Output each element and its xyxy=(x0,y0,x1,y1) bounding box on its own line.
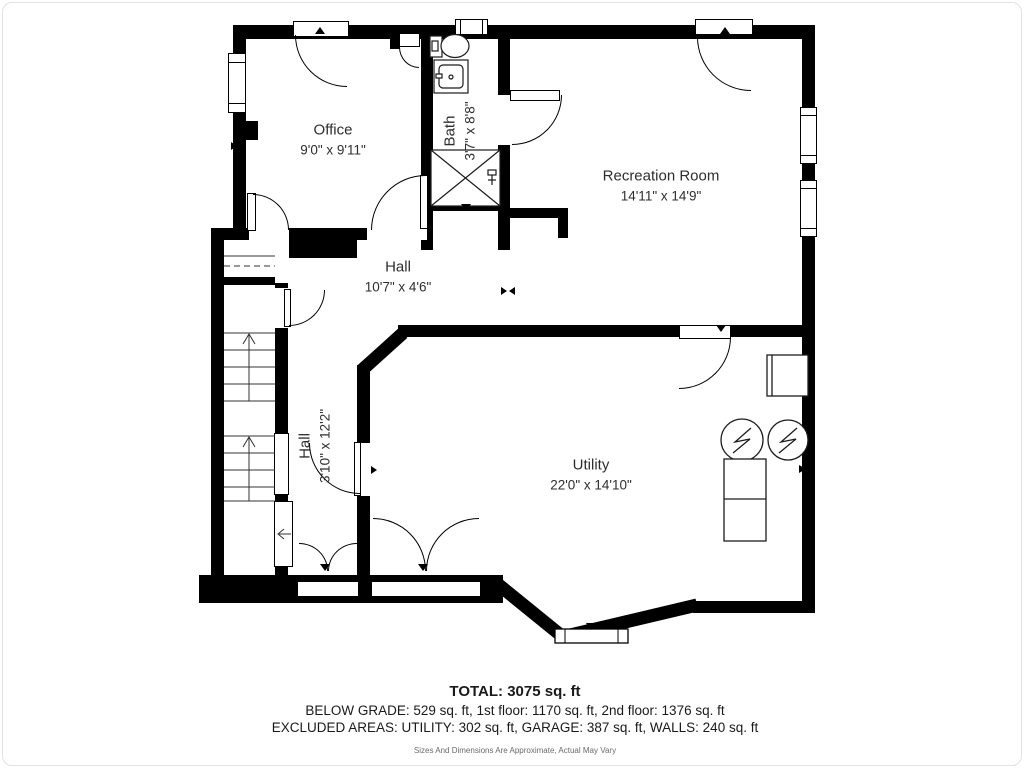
room-name: Hall xyxy=(294,409,316,483)
bay-window xyxy=(555,629,628,643)
room-name: Office xyxy=(300,119,366,141)
floorplan: Office 9'0" x 9'11" Bath 3'7" x 8'8" Rec… xyxy=(3,3,1024,663)
disclaimer: Sizes And Dimensions Are Approximate, Ac… xyxy=(3,746,1024,755)
stairs xyxy=(224,436,275,501)
passage-arrow xyxy=(278,529,291,539)
room-dims: 9'0" x 9'11" xyxy=(300,141,366,159)
room-name: Utility xyxy=(550,454,632,476)
water-heater-icon xyxy=(768,420,808,460)
toilet-fixture xyxy=(430,35,469,58)
room-dims: 22'0" x 14'10" xyxy=(550,476,632,494)
room-dims: 3'7" x 8'8" xyxy=(461,101,479,160)
room-dims: 10'7" x 4'6" xyxy=(365,278,432,296)
floorplan-page: { "rooms": { "office": {"name": "Office"… xyxy=(0,0,1024,768)
sink-fixture xyxy=(434,60,468,93)
room-name: Bath xyxy=(439,101,461,160)
plan-linework xyxy=(3,3,1024,663)
water-heater-icon xyxy=(721,419,763,461)
room-label-bath: Bath 3'7" x 8'8" xyxy=(439,101,478,160)
stairs xyxy=(224,333,275,401)
floorplan-card: Office 9'0" x 9'11" Bath 3'7" x 8'8" Rec… xyxy=(2,2,1022,766)
floor-areas: BELOW GRADE: 529 sq. ft, 1st floor: 1170… xyxy=(3,702,1024,720)
furnace-fixture xyxy=(724,459,766,541)
appliance-fixture xyxy=(767,355,808,396)
room-dims: 3'10" x 12'2" xyxy=(316,409,334,483)
room-dims: 14'11" x 14'9" xyxy=(603,187,720,205)
room-label-hall: Hall 10'7" x 4'6" xyxy=(365,256,432,295)
excluded-areas: EXCLUDED AREAS: UTILITY: 302 sq. ft, GAR… xyxy=(3,719,1024,737)
stair-landing xyxy=(224,256,275,266)
room-label-office: Office 9'0" x 9'11" xyxy=(300,119,366,158)
room-name: Hall xyxy=(365,256,432,278)
room-label-hall2: Hall 3'10" x 12'2" xyxy=(294,409,333,483)
room-label-recreation: Recreation Room 14'11" x 14'9" xyxy=(603,165,720,204)
diagonal-wall xyxy=(362,333,697,637)
area-summary: TOTAL: 3075 sq. ft BELOW GRADE: 529 sq. … xyxy=(3,683,1024,755)
total-area: TOTAL: 3075 sq. ft xyxy=(3,683,1024,702)
room-label-utility: Utility 22'0" x 14'10" xyxy=(550,454,632,493)
room-name: Recreation Room xyxy=(603,165,720,187)
direction-marker xyxy=(231,27,806,630)
